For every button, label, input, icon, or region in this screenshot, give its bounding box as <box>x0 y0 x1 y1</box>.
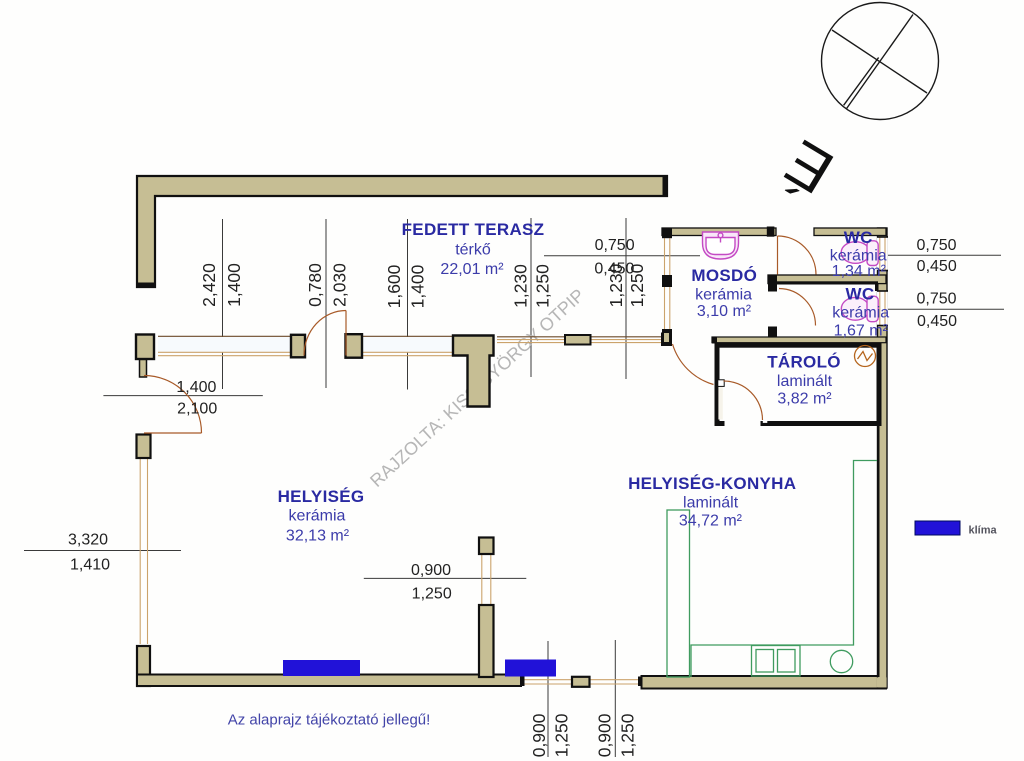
svg-text:34,72 m²: 34,72 m² <box>679 513 743 530</box>
svg-text:MOSDÓ: MOSDÓ <box>691 266 757 285</box>
svg-text:0,780: 0,780 <box>305 263 325 307</box>
svg-text:1,250: 1,250 <box>532 264 552 308</box>
svg-text:1,600: 1,600 <box>384 264 404 308</box>
svg-text:laminált: laminált <box>683 495 739 512</box>
svg-text:0,900: 0,900 <box>595 713 615 757</box>
svg-text:laminált: laminált <box>777 373 833 390</box>
svg-text:WC: WC <box>846 285 875 304</box>
svg-text:kerámia: kerámia <box>695 287 752 304</box>
svg-text:1,400: 1,400 <box>224 263 244 307</box>
svg-text:1,250: 1,250 <box>627 263 647 307</box>
svg-text:1,250: 1,250 <box>618 713 638 757</box>
svg-text:2,420: 2,420 <box>199 263 219 307</box>
svg-text:Az alaprajz tájékoztató jelleg: Az alaprajz tájékoztató jellegű! <box>228 712 431 729</box>
svg-text:2,030: 2,030 <box>329 263 349 307</box>
svg-text:TÁROLÓ: TÁROLÓ <box>767 353 841 372</box>
svg-text:2,100: 2,100 <box>177 401 217 418</box>
svg-text:0,750: 0,750 <box>916 291 956 308</box>
svg-text:1,34 m²: 1,34 m² <box>832 263 887 280</box>
svg-text:1,410: 1,410 <box>70 557 110 574</box>
svg-text:HELYISÉG: HELYISÉG <box>278 487 365 506</box>
svg-text:1,230: 1,230 <box>510 264 530 308</box>
svg-text:0,900: 0,900 <box>529 713 549 757</box>
svg-text:FEDETT TERASZ: FEDETT TERASZ <box>402 220 545 239</box>
svg-text:1,230: 1,230 <box>606 263 626 307</box>
svg-text:térkő: térkő <box>455 242 491 259</box>
svg-text:32,13 m²: 32,13 m² <box>286 528 350 545</box>
svg-text:0,450: 0,450 <box>917 313 957 330</box>
svg-text:HELYISÉG-KONYHA: HELYISÉG-KONYHA <box>628 474 796 493</box>
svg-text:WC: WC <box>844 228 873 247</box>
svg-text:0,900: 0,900 <box>411 562 451 579</box>
svg-text:22,01 m²: 22,01 m² <box>440 261 504 278</box>
svg-text:0,450: 0,450 <box>917 258 957 275</box>
svg-text:1,250: 1,250 <box>412 586 452 603</box>
svg-text:kerámia: kerámia <box>830 247 887 264</box>
svg-text:1,400: 1,400 <box>408 264 428 308</box>
svg-text:0,750: 0,750 <box>595 237 635 254</box>
svg-text:kerámia: kerámia <box>832 305 889 322</box>
svg-text:kerámia: kerámia <box>289 508 346 525</box>
svg-text:1,250: 1,250 <box>552 713 572 757</box>
svg-text:klíma: klíma <box>969 525 998 537</box>
svg-text:3,82 m²: 3,82 m² <box>777 391 832 408</box>
svg-text:3,10 m²: 3,10 m² <box>697 303 752 320</box>
svg-text:3,320: 3,320 <box>68 532 108 549</box>
svg-text:1,67 m²: 1,67 m² <box>834 322 889 339</box>
svg-text:1,400: 1,400 <box>176 379 216 396</box>
svg-text:0,750: 0,750 <box>916 237 956 254</box>
